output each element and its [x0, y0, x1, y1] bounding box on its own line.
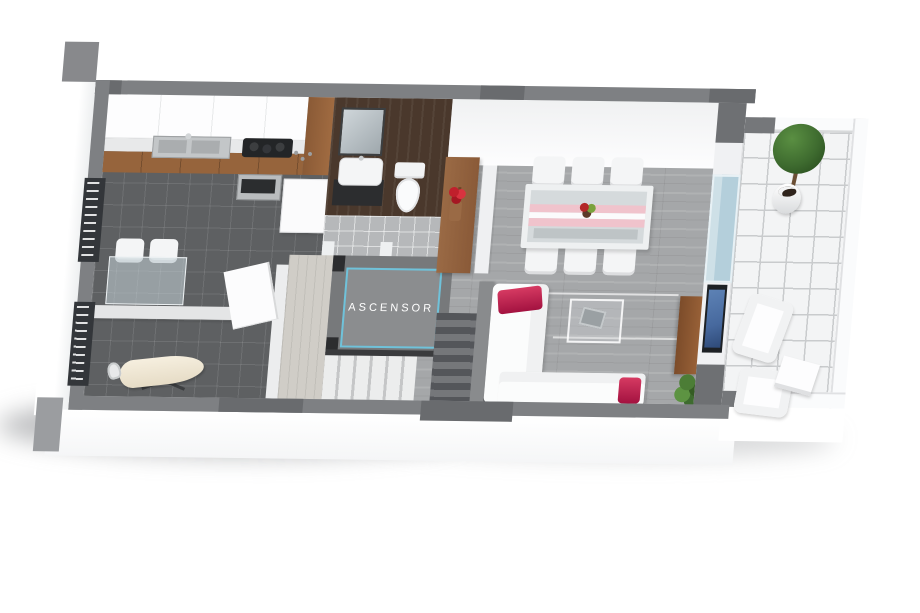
table-runner: [528, 218, 645, 228]
window-glass: [71, 306, 89, 382]
kitchen-glass-table: [105, 256, 187, 305]
exterior-corner-bottom-left: [33, 397, 64, 451]
elevator-label: ASCENSOR: [348, 302, 435, 315]
bathroom-mirror: [338, 107, 386, 156]
open-door: [224, 262, 279, 330]
coffee-table: [566, 299, 624, 344]
oven: [236, 174, 282, 201]
dining-chair: [610, 157, 645, 187]
bathroom-sink: [337, 157, 383, 186]
exterior-wall-bottom: [44, 409, 736, 465]
shaft-corner: [332, 255, 345, 271]
flower-vase: [449, 201, 463, 221]
sink-basin: [158, 140, 187, 153]
floorplan-3d-render: ASCENSOR: [0, 0, 920, 613]
sink-basin: [191, 140, 220, 153]
tv-picture: [704, 290, 725, 348]
refrigerator: [279, 179, 330, 234]
dining-chair: [571, 157, 606, 187]
apartment-plan: ASCENSOR: [68, 80, 886, 423]
burner-icon: [249, 142, 259, 151]
sofa-pillow: [617, 377, 641, 403]
dining-chair: [532, 156, 567, 186]
table-tray: [578, 307, 606, 330]
exterior-corner-top-left: [62, 42, 99, 82]
south-wall-pillar: [218, 398, 303, 413]
kitchen-utility-partition: [90, 305, 239, 320]
faucet-icon: [185, 133, 192, 139]
table-frosted-band: [533, 228, 638, 239]
faucet-icon: [359, 156, 364, 161]
toilet-tank: [394, 162, 425, 178]
wall-pillar: [693, 364, 725, 406]
parapet-pillar: [744, 117, 775, 133]
wall-pillar: [715, 103, 746, 143]
stairs-down-flight: [321, 355, 417, 400]
dining-table: [520, 184, 653, 250]
oven-door: [241, 179, 276, 193]
kitchen-sink: [152, 136, 232, 159]
north-wall-pillar: [709, 89, 756, 104]
north-wall-pillar: [480, 85, 525, 100]
cooktop: [242, 138, 294, 158]
window-glass: [81, 182, 99, 258]
south-wall-pillar: [420, 401, 514, 422]
elevator-car: ASCENSOR: [340, 268, 443, 349]
kitchen-upper-cabinets: [105, 94, 309, 141]
